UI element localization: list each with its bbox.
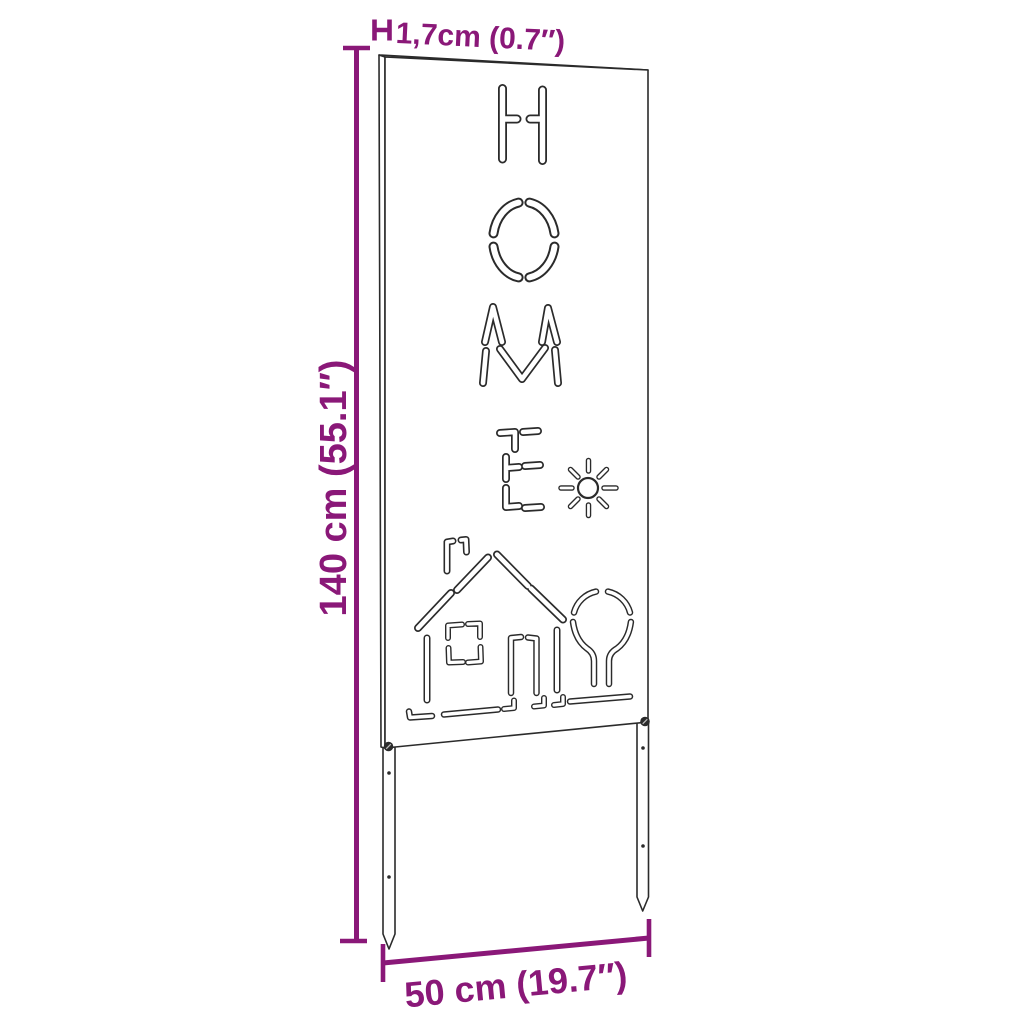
thickness-marker-icon <box>375 20 390 41</box>
stake-hole <box>387 771 391 775</box>
stake-hole <box>641 746 645 750</box>
thickness-dimension: 1,7cm (0.7″) <box>375 17 566 58</box>
stake-right <box>637 722 649 911</box>
screw-left <box>384 742 394 752</box>
stake-hole <box>387 875 391 879</box>
diagram-svg: 140 cm (55.1″) 50 cm (19.7″) 1,7cm (0.7″… <box>0 0 1024 1024</box>
panel-left-edge <box>379 55 385 748</box>
height-dimension: 140 cm (55.1″) <box>313 48 370 941</box>
product-dimension-diagram: 140 cm (55.1″) 50 cm (19.7″) 1,7cm (0.7″… <box>0 0 1024 1024</box>
thickness-dimension-label: 1,7cm (0.7″) <box>395 17 566 58</box>
screw-right <box>640 717 650 727</box>
stake-hole <box>641 844 645 848</box>
panel <box>379 55 650 949</box>
stake-left <box>383 747 395 949</box>
width-dimension-label: 50 cm (19.7″) <box>403 954 629 1016</box>
height-dimension-label: 140 cm (55.1″) <box>313 360 355 617</box>
width-dimension: 50 cm (19.7″) <box>383 919 649 1015</box>
sun-icon <box>561 461 616 516</box>
